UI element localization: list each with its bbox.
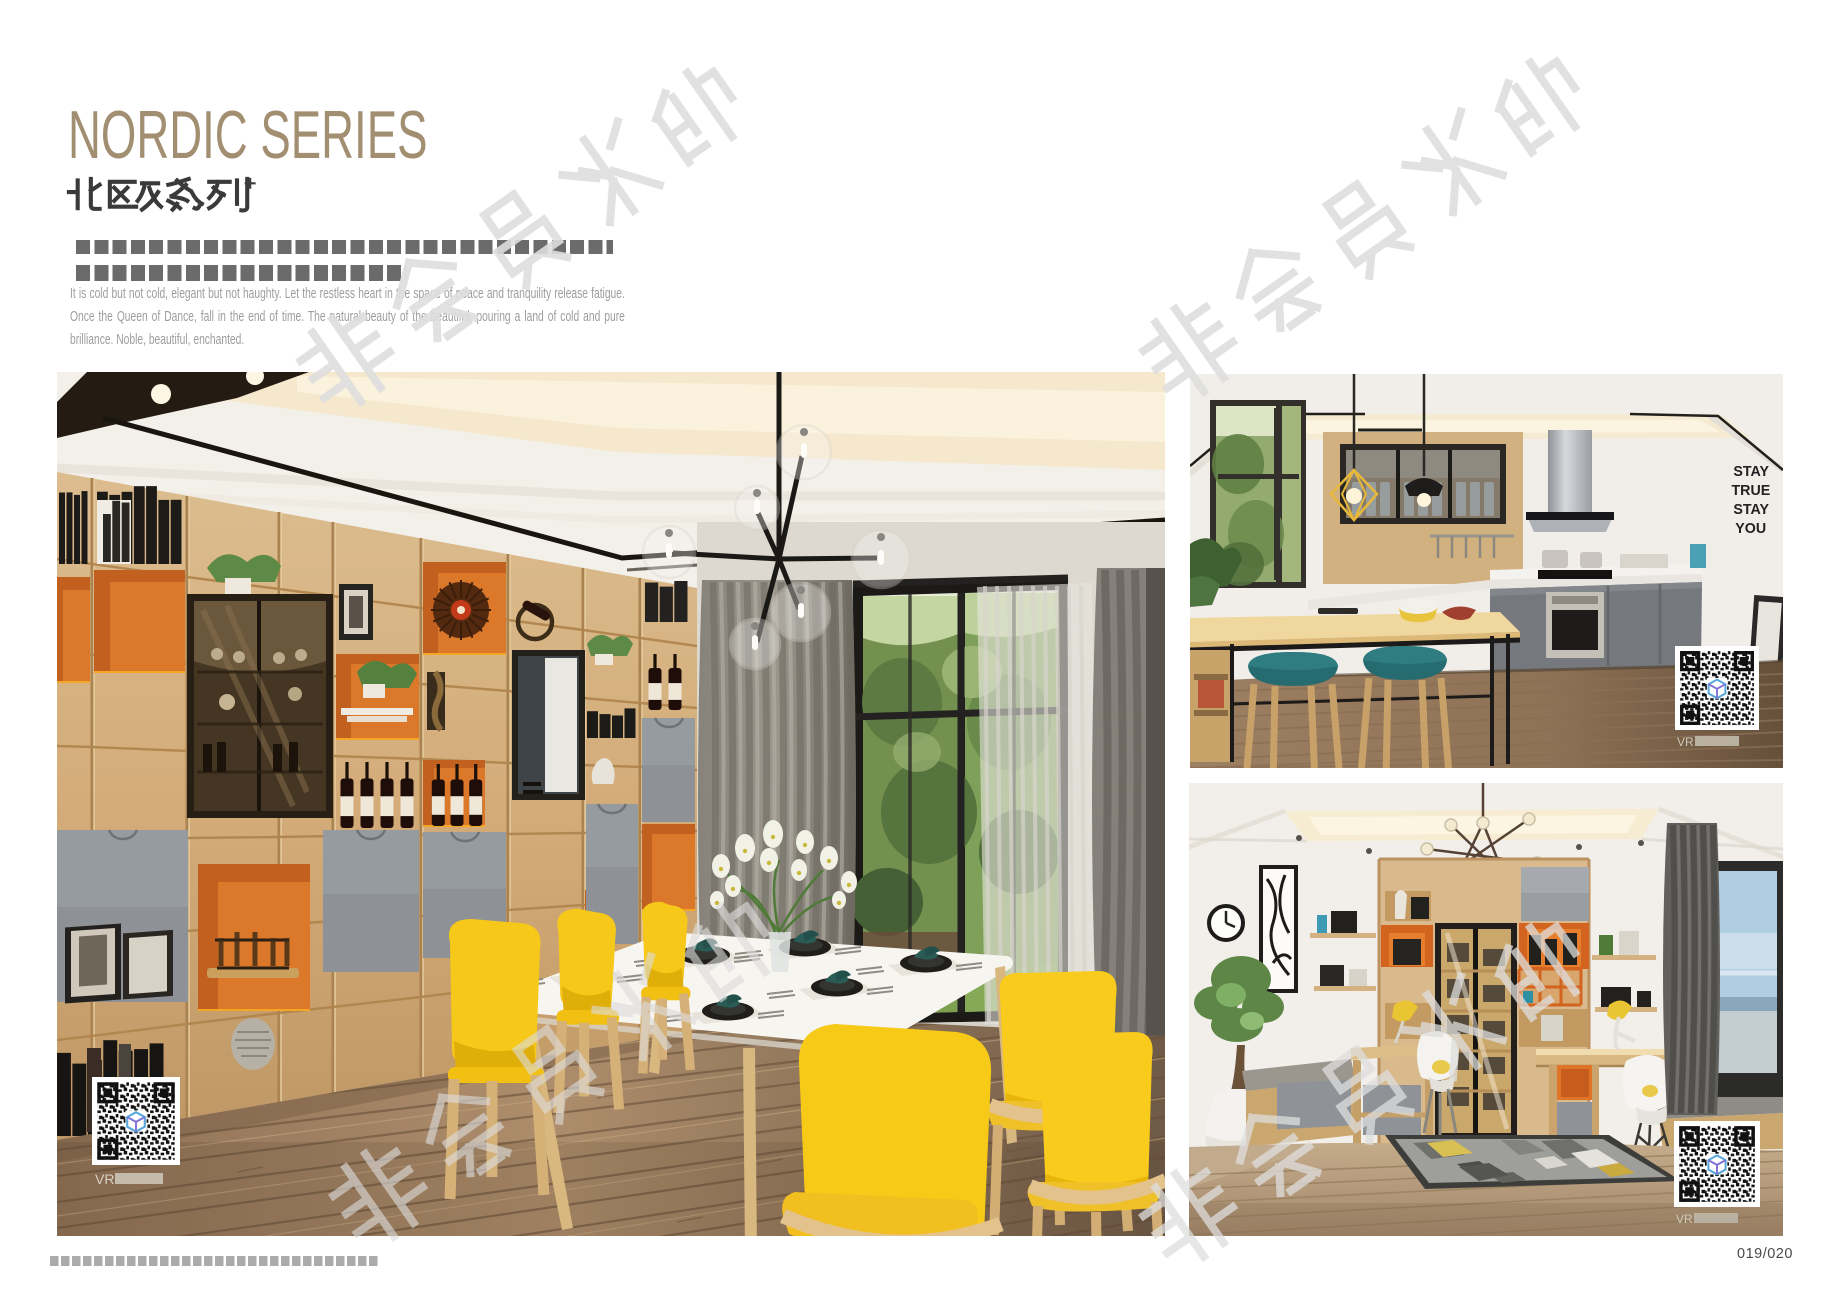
svg-text:STAY: STAY bbox=[1733, 464, 1769, 480]
svg-text:VR: VR bbox=[95, 1171, 114, 1187]
svg-text:VR: VR bbox=[1677, 735, 1694, 749]
svg-text:STAY: STAY bbox=[1733, 502, 1769, 518]
svg-text:YOU: YOU bbox=[1735, 521, 1766, 537]
svg-text:VR: VR bbox=[1676, 1212, 1693, 1226]
svg-text:TRUE: TRUE bbox=[1732, 483, 1771, 499]
